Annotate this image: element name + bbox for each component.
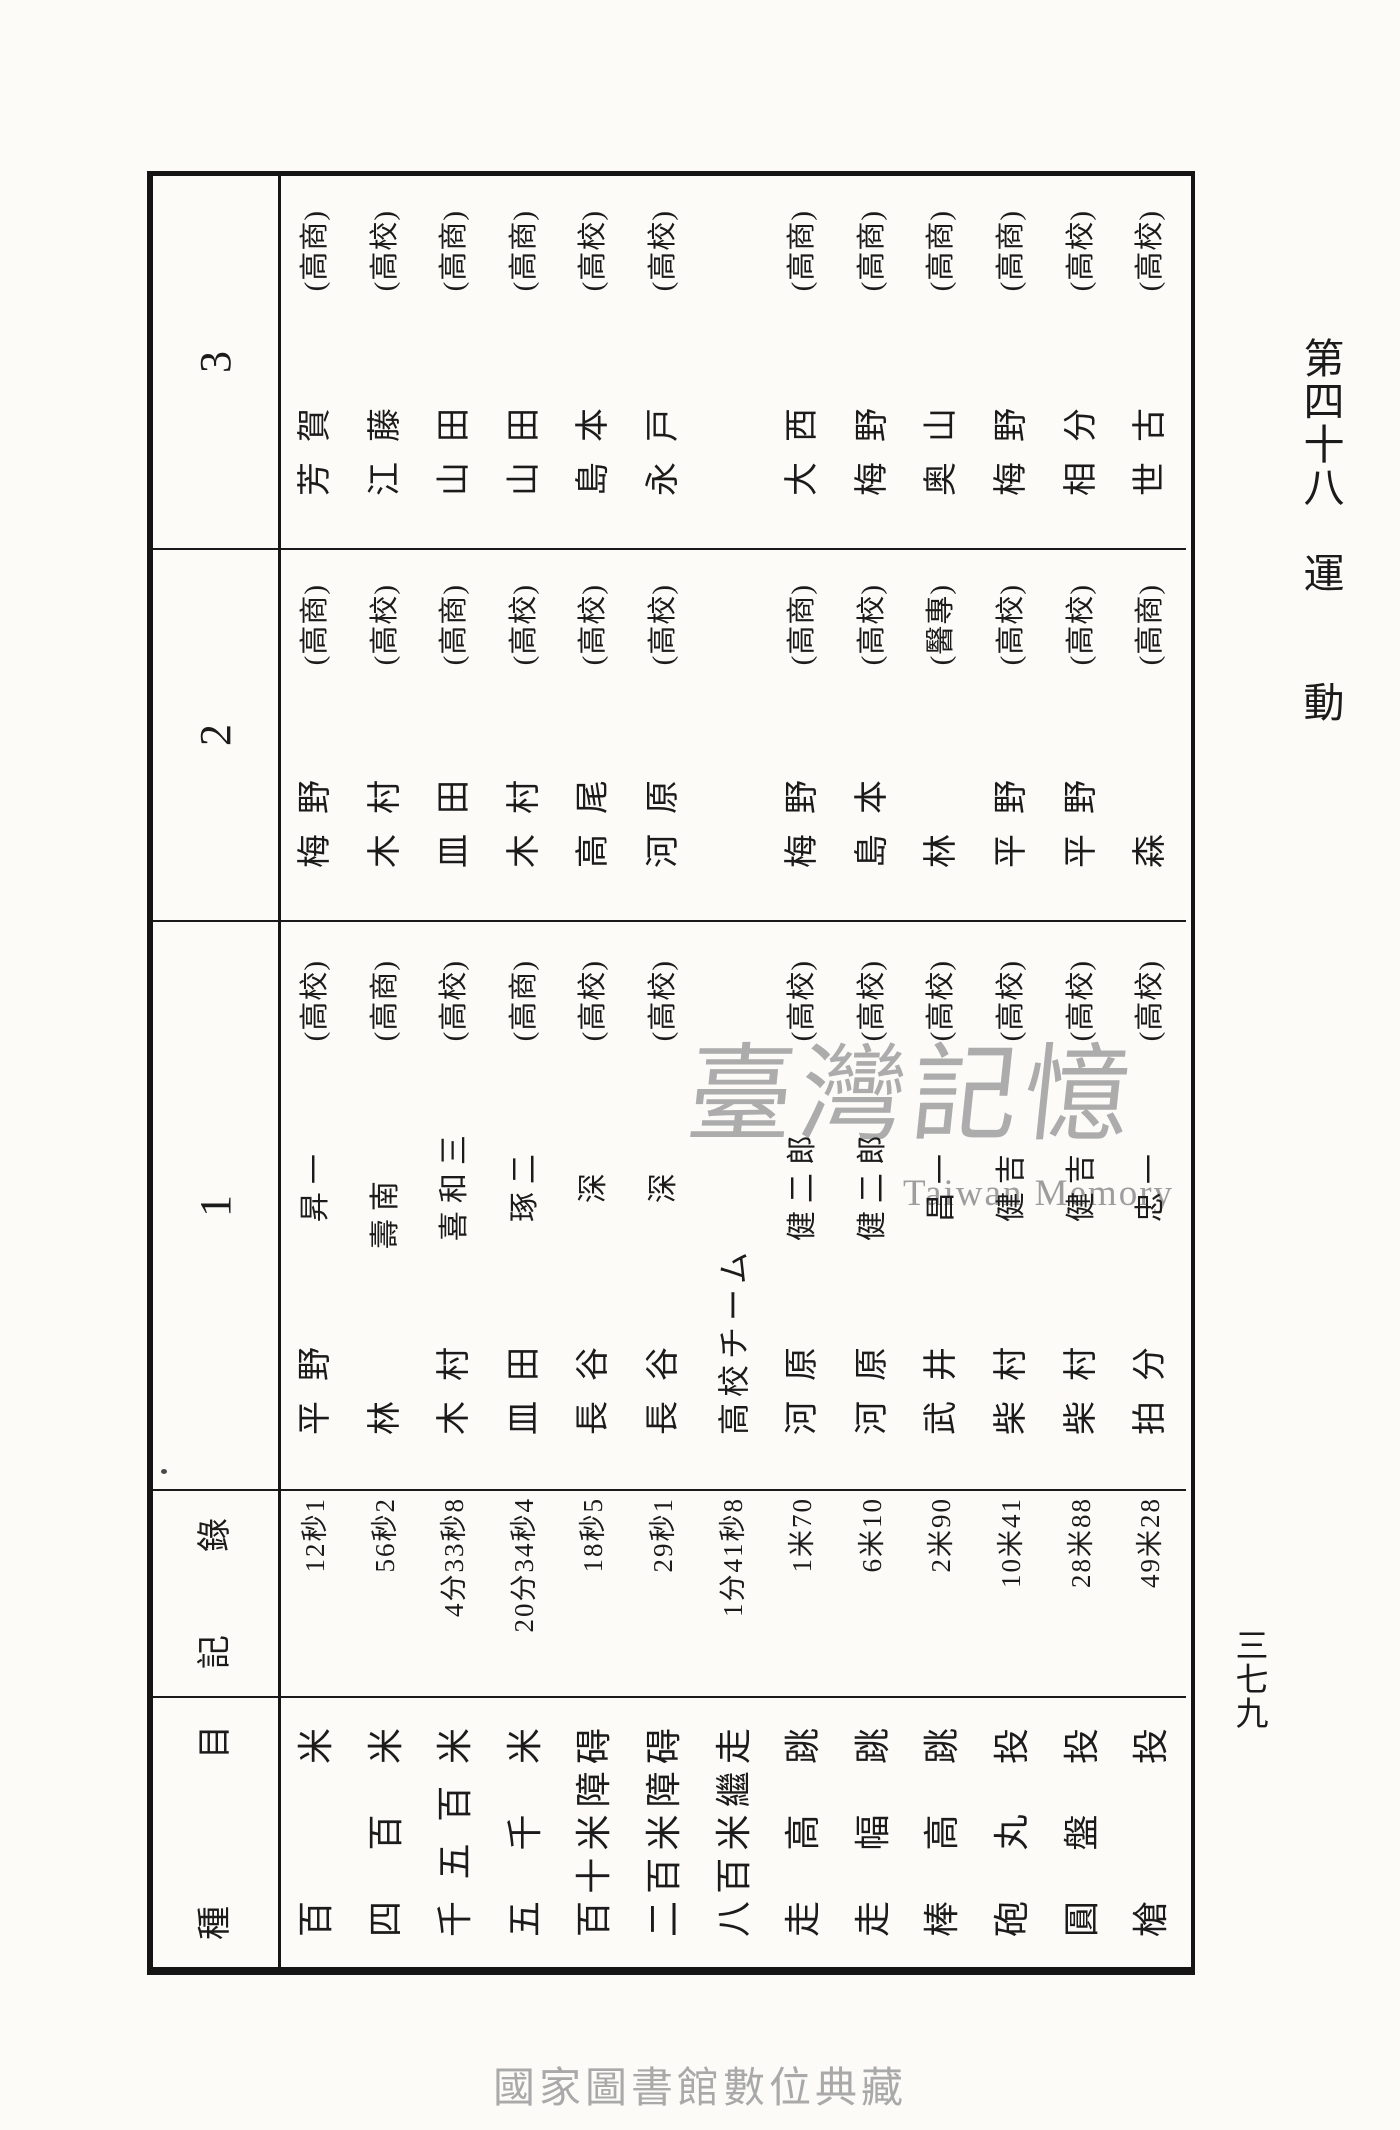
place3-school: (高商) [997, 210, 1026, 291]
event-cell: 砲丸投 [977, 1696, 1047, 1967]
header-event-cell: 種目 [153, 1696, 278, 1967]
place1-team: 高校チーム [717, 1246, 749, 1435]
place2-school: (高校) [858, 584, 887, 665]
place1-surname: 武井 [925, 1327, 959, 1435]
event-cell: 二百米障碍 [629, 1696, 699, 1967]
event-cell: 四百米 [351, 1696, 421, 1967]
place1-school: (高校) [997, 960, 1026, 1041]
place2-school: (高商) [788, 584, 817, 665]
place1-school: (高校) [580, 960, 609, 1041]
place1-surname: 柴村 [1064, 1327, 1098, 1435]
place1-surname: 拍分 [1134, 1327, 1168, 1435]
place3-entry: 山田(高商) [490, 176, 560, 548]
place1-cell: 平野昇一(高校) [281, 920, 351, 1490]
ink-speck [161, 1469, 167, 1474]
place3-cell: 山田(高商) [490, 176, 560, 548]
place1-given-name: 壽南 [370, 1173, 400, 1249]
athletics-results-table: 3 2 1 記錄 種目 芳賀(高商) 梅野(高商) 平野昇一(高校) 12秒1 … [147, 171, 1195, 1975]
record-value: 20分34秒4 [511, 1497, 538, 1633]
place3-cell: 島本(高校) [559, 176, 629, 548]
place2-entry: 梅野(高商) [768, 550, 838, 920]
place1-school: (高商) [371, 960, 400, 1041]
event-column-high-jump: 大西(高商) 梅野(高商) 河原健二郎(高校) 1米70 走高跳 [768, 176, 838, 1967]
place3-school: (高校) [1067, 210, 1096, 291]
place1-cell: 木村喜和三(高校) [420, 920, 490, 1490]
place1-given-name: 健二郎 [788, 1127, 818, 1241]
place2-cell: 河原(高校) [629, 548, 699, 920]
place1-school: (高校) [440, 960, 469, 1041]
place3-school: (高商) [440, 210, 469, 291]
event-column-discus: 相分(高校) 平野(高校) 柴村健吉(高校) 28米88 圓盤投 [1047, 176, 1117, 1967]
event-cell: 八百米繼走 [699, 1696, 769, 1967]
record-cell: 6米10 [838, 1489, 908, 1696]
event-column-javelin: 世古(高校) 森(高商) 拍分忠一(高校) 49米28 槍投 [1116, 176, 1186, 1967]
place2-surname: 林 [925, 814, 959, 868]
record-entry: 1米70 [768, 1491, 838, 1696]
place2-surname: 高尾 [577, 760, 611, 868]
place3-surname: 世古 [1134, 388, 1168, 496]
place1-entry: 河原健二郎(高校) [768, 922, 838, 1490]
event-name: 砲丸投 [977, 1698, 1047, 1967]
place1-surname: 河原 [786, 1327, 820, 1435]
place2-surname: 島本 [856, 760, 890, 868]
event-cell: 走高跳 [768, 1696, 838, 1967]
event-column-long-jump: 梅野(高商) 島本(高校) 河原健二郎(高校) 6米10 走幅跳 [838, 176, 908, 1967]
event-cell: 槍投 [1116, 1696, 1186, 1967]
place1-given-name: 昌一 [927, 1146, 957, 1222]
event-name: 百十米障碍 [559, 1698, 629, 1967]
event-name: 千五百米 [420, 1698, 490, 1967]
record-cell: 1米70 [768, 1489, 838, 1696]
event-name: 棒高跳 [907, 1698, 977, 1967]
place1-entry: 柴村健吉(高校) [977, 922, 1047, 1490]
record-value: 1米70 [789, 1497, 816, 1573]
place2-entry: 森(高商) [1116, 550, 1186, 920]
place2-cell: 平野(高校) [977, 548, 1047, 920]
place2-surname: 平野 [1064, 760, 1098, 868]
place2-cell: 高尾(高校) [559, 548, 629, 920]
header-place1-cell: 1 [153, 920, 278, 1490]
place1-given-name: 健吉 [1066, 1146, 1096, 1222]
place3-school: (高校) [371, 210, 400, 291]
place3-school: (高商) [858, 210, 887, 291]
place3-cell: 江藤(高校) [351, 176, 421, 548]
event-name: 百米 [281, 1698, 351, 1967]
place1-school: (高校) [301, 960, 330, 1041]
event-column-110m-hurdles: 島本(高校) 高尾(高校) 長谷深(高校) 18秒5 百十米障碍 [559, 176, 629, 1967]
place1-surname: 林 [368, 1381, 402, 1435]
place3-cell: 奥山(高商) [907, 176, 977, 548]
place1-cell: 拍分忠一(高校) [1116, 920, 1186, 1490]
place1-cell: 河原健二郎(高校) [768, 920, 838, 1490]
place2-school: (高商) [440, 584, 469, 665]
record-value: 28米88 [1068, 1497, 1095, 1588]
place3-school: (高校) [580, 210, 609, 291]
place1-surname: 長谷 [577, 1327, 611, 1435]
event-cell: 百十米障碍 [559, 1696, 629, 1967]
place1-entry: 拍分忠一(高校) [1116, 922, 1186, 1490]
record-cell: 12秒1 [281, 1489, 351, 1696]
place1-entry: 林壽南(高商) [351, 922, 421, 1490]
place3-cell: 相分(高校) [1047, 176, 1117, 548]
place3-surname: 山田 [438, 388, 472, 496]
place2-entry: 木村(高校) [490, 550, 560, 920]
event-column-1500m: 山田(高商) 皿田(高商) 木村喜和三(高校) 4分33秒8 千五百米 [420, 176, 490, 1967]
place2-cell: 梅野(高商) [281, 548, 351, 920]
record-entry: 1分41秒8 [699, 1491, 769, 1696]
place1-entry: 木村喜和三(高校) [420, 922, 490, 1490]
place3-cell: 梅野(高商) [838, 176, 908, 548]
place3-school: (高商) [928, 210, 957, 291]
place1-entry: 高校チーム [699, 922, 769, 1490]
place3-surname: 山田 [508, 388, 542, 496]
place2-cell: 林(醫專) [907, 548, 977, 920]
event-name: 走幅跳 [838, 1698, 908, 1967]
place3-surname: 大西 [786, 388, 820, 496]
place2-cell-empty [699, 548, 769, 920]
event-column-200m-hurdles: 永戸(高校) 河原(高校) 長谷深(高校) 29秒1 二百米障碍 [629, 176, 699, 1967]
place2-entry: 島本(高校) [838, 550, 908, 920]
place2-surname: 河原 [647, 760, 681, 868]
record-entry: 28米88 [1047, 1491, 1117, 1696]
place2-cell: 島本(高校) [838, 548, 908, 920]
page-number: 三七九 [1231, 1628, 1264, 1730]
place3-cell: 芳賀(高商) [281, 176, 351, 548]
place2-school: (高校) [997, 584, 1026, 665]
place2-entry: 平野(高校) [977, 550, 1047, 920]
place2-school: (高校) [371, 584, 400, 665]
place1-given-name: 健二郎 [858, 1127, 888, 1241]
event-name: 走高跳 [768, 1698, 838, 1967]
place2-entry: 高尾(高校) [559, 550, 629, 920]
place3-entry: 島本(高校) [559, 176, 629, 548]
place1-entry: 皿田琢二(高商) [490, 922, 560, 1490]
place2-school: (高校) [649, 584, 678, 665]
place3-entry: 相分(高校) [1047, 176, 1117, 548]
place3-school: (高校) [649, 210, 678, 291]
place3-entry: 永戸(高校) [629, 176, 699, 548]
event-column-pole-vault: 奥山(高商) 林(醫專) 武井昌一(高校) 2米90 棒高跳 [907, 176, 977, 1967]
record-cell: 4分33秒8 [420, 1489, 490, 1696]
place2-school: (高商) [301, 584, 330, 665]
place3-cell: 梅野(高商) [977, 176, 1047, 548]
record-cell: 49米28 [1116, 1489, 1186, 1696]
place1-entry: 武井昌一(高校) [907, 922, 977, 1490]
place2-entry: 林(醫專) [907, 550, 977, 920]
header-place1-label: 1 [153, 922, 278, 1490]
record-cell: 1分41秒8 [699, 1489, 769, 1696]
event-cell: 百米 [281, 1696, 351, 1967]
header-record-cell: 記錄 [153, 1489, 278, 1696]
place2-entry: 皿田(高商) [420, 550, 490, 920]
event-name: 八百米繼走 [699, 1698, 769, 1967]
place2-surname: 森 [1134, 814, 1168, 868]
place2-surname: 皿田 [438, 760, 472, 868]
place3-cell: 永戸(高校) [629, 176, 699, 548]
event-cell: 圓盤投 [1047, 1696, 1117, 1967]
record-value: 1分41秒8 [720, 1497, 747, 1617]
place1-entry: 河原健二郎(高校) [838, 922, 908, 1490]
event-column-400m: 江藤(高校) 木村(高校) 林壽南(高商) 56秒2 四百米 [351, 176, 421, 1967]
record-value: 12秒1 [302, 1497, 329, 1573]
header-record-label: 記錄 [153, 1491, 278, 1696]
place1-school: (高校) [928, 960, 957, 1041]
record-entry: 4分33秒8 [420, 1491, 490, 1696]
place3-entry: 芳賀(高商) [281, 176, 351, 548]
event-name: 四百米 [351, 1698, 421, 1967]
record-cell: 29秒1 [629, 1489, 699, 1696]
header-column: 3 2 1 記錄 種目 [153, 176, 281, 1967]
place1-given-name: 昇一 [301, 1146, 331, 1222]
place2-school: (高校) [580, 584, 609, 665]
event-column-100m: 芳賀(高商) 梅野(高商) 平野昇一(高校) 12秒1 百米 [281, 176, 351, 1967]
event-cell: 五千米 [490, 1696, 560, 1967]
place1-entry: 柴村健吉(高校) [1047, 922, 1117, 1490]
place1-entry: 長谷深(高校) [629, 922, 699, 1490]
header-place3-label: 3 [153, 176, 278, 548]
place1-school: (高校) [649, 960, 678, 1041]
place1-school: (高校) [1067, 960, 1096, 1041]
library-caption: 國家圖書館數位典藏 [0, 2054, 1400, 2115]
event-name: 圓盤投 [1047, 1698, 1117, 1967]
place3-school: (高校) [1136, 210, 1165, 291]
record-entry: 29秒1 [629, 1491, 699, 1696]
place2-cell: 木村(高校) [490, 548, 560, 920]
event-cell: 千五百米 [420, 1696, 490, 1967]
header-place2-label: 2 [153, 550, 278, 920]
place3-surname: 梅野 [995, 388, 1029, 496]
place2-school: (高校) [1067, 584, 1096, 665]
place2-surname: 木村 [368, 760, 402, 868]
place2-entry: 梅野(高商) [281, 550, 351, 920]
place2-cell: 皿田(高商) [420, 548, 490, 920]
record-value: 10米41 [998, 1497, 1025, 1588]
record-value: 49米28 [1137, 1497, 1164, 1588]
place1-cell: 長谷深(高校) [559, 920, 629, 1490]
place3-entry: 世古(高校) [1116, 176, 1186, 548]
place3-surname: 梅野 [856, 388, 890, 496]
margin-chapter-title: 第四十八 運 動 [1299, 337, 1340, 724]
place2-surname: 平野 [995, 760, 1029, 868]
event-cell: 棒高跳 [907, 1696, 977, 1967]
place2-school: (高商) [1136, 584, 1165, 665]
header-event-label: 種目 [153, 1698, 278, 1967]
place3-entry: 奥山(高商) [907, 176, 977, 548]
place1-surname: 皿田 [508, 1327, 542, 1435]
place2-cell: 梅野(高商) [768, 548, 838, 920]
header-place2-cell: 2 [153, 548, 278, 920]
record-cell: 20分34秒4 [490, 1489, 560, 1696]
place2-school: (醫專) [928, 584, 957, 665]
place3-surname: 相分 [1064, 388, 1098, 496]
place3-surname: 芳賀 [299, 388, 333, 496]
record-cell: 10米41 [977, 1489, 1047, 1696]
place1-school: (高校) [858, 960, 887, 1041]
event-cell: 走幅跳 [838, 1696, 908, 1967]
place3-entry: 梅野(高商) [838, 176, 908, 548]
place1-cell: 皿田琢二(高商) [490, 920, 560, 1490]
record-entry: 20分34秒4 [490, 1491, 560, 1696]
place3-school: (高商) [510, 210, 539, 291]
place3-entry: 大西(高商) [768, 176, 838, 548]
place1-school: (高校) [1136, 960, 1165, 1041]
place1-surname: 木村 [438, 1327, 472, 1435]
place1-given-name: 深 [579, 1165, 609, 1203]
record-value: 18秒5 [581, 1497, 608, 1573]
place3-entry: 梅野(高商) [977, 176, 1047, 548]
event-column-shot-put: 梅野(高商) 平野(高校) 柴村健吉(高校) 10米41 砲丸投 [977, 176, 1047, 1967]
place1-given-name: 忠一 [1136, 1146, 1166, 1222]
place1-cell: 長谷深(高校) [629, 920, 699, 1490]
place3-surname: 永戸 [647, 388, 681, 496]
place2-entry: 平野(高校) [1047, 550, 1117, 920]
record-entry: 18秒5 [559, 1491, 629, 1696]
place1-surname: 平野 [299, 1327, 333, 1435]
record-entry: 10米41 [977, 1491, 1047, 1696]
place3-entry: 山田(高商) [420, 176, 490, 548]
place2-surname: 梅野 [299, 760, 333, 868]
event-name: 五千米 [490, 1698, 560, 1967]
place2-school: (高校) [510, 584, 539, 665]
place1-given-name: 琢二 [510, 1146, 540, 1222]
place1-cell: 林壽南(高商) [351, 920, 421, 1490]
place1-entry: 長谷深(高校) [559, 922, 629, 1490]
place1-surname: 河原 [856, 1327, 890, 1435]
place1-surname: 柴村 [995, 1327, 1029, 1435]
record-value: 4分33秒8 [441, 1497, 468, 1617]
event-name: 槍投 [1116, 1698, 1186, 1967]
place2-cell: 平野(高校) [1047, 548, 1117, 920]
place3-cell-empty [699, 176, 769, 548]
record-cell: 2米90 [907, 1489, 977, 1696]
record-cell: 56秒2 [351, 1489, 421, 1696]
header-place3-cell: 3 [153, 176, 278, 548]
record-value: 29秒1 [650, 1497, 677, 1573]
place1-cell: 柴村健吉(高校) [977, 920, 1047, 1490]
place1-school: (高校) [788, 960, 817, 1041]
place3-cell: 世古(高校) [1116, 176, 1186, 548]
place3-cell: 山田(高商) [420, 176, 490, 548]
place1-entry: 平野昇一(高校) [281, 922, 351, 1490]
place1-given-name: 深 [649, 1165, 679, 1203]
event-column-5000m: 山田(高商) 木村(高校) 皿田琢二(高商) 20分34秒4 五千米 [490, 176, 560, 1967]
place2-cell: 森(高商) [1116, 548, 1186, 920]
event-column-800m-relay: 高校チーム 1分41秒8 八百米繼走 [699, 176, 769, 1967]
place3-school: (高商) [301, 210, 330, 291]
record-entry: 2米90 [907, 1491, 977, 1696]
record-cell: 18秒5 [559, 1489, 629, 1696]
place1-surname: 長谷 [647, 1327, 681, 1435]
record-cell: 28米88 [1047, 1489, 1117, 1696]
place2-surname: 梅野 [786, 760, 820, 868]
record-value: 56秒2 [372, 1497, 399, 1573]
place2-entry: 河原(高校) [629, 550, 699, 920]
place1-cell: 河原健二郎(高校) [838, 920, 908, 1490]
place3-cell: 大西(高商) [768, 176, 838, 548]
place1-cell: 武井昌一(高校) [907, 920, 977, 1490]
place3-school: (高商) [788, 210, 817, 291]
place1-school: (高商) [510, 960, 539, 1041]
record-value: 6米10 [859, 1497, 886, 1573]
event-name: 二百米障碍 [629, 1698, 699, 1967]
record-value: 2米90 [929, 1497, 956, 1573]
record-entry: 12秒1 [281, 1491, 351, 1696]
place3-surname: 奥山 [925, 388, 959, 496]
place1-cell: 柴村健吉(高校) [1047, 920, 1117, 1490]
place3-surname: 島本 [577, 388, 611, 496]
place3-surname: 江藤 [368, 388, 402, 496]
record-entry: 56秒2 [351, 1491, 421, 1696]
record-entry: 6米10 [838, 1491, 908, 1696]
place2-surname: 木村 [508, 760, 542, 868]
place2-entry: 木村(高校) [351, 550, 421, 920]
place1-given-name: 健吉 [997, 1146, 1027, 1222]
record-entry: 49米28 [1116, 1491, 1186, 1696]
place1-given-name: 喜和三 [440, 1127, 470, 1241]
place1-cell: 高校チーム [699, 920, 769, 1490]
place2-cell: 木村(高校) [351, 548, 421, 920]
place3-entry: 江藤(高校) [351, 176, 421, 548]
